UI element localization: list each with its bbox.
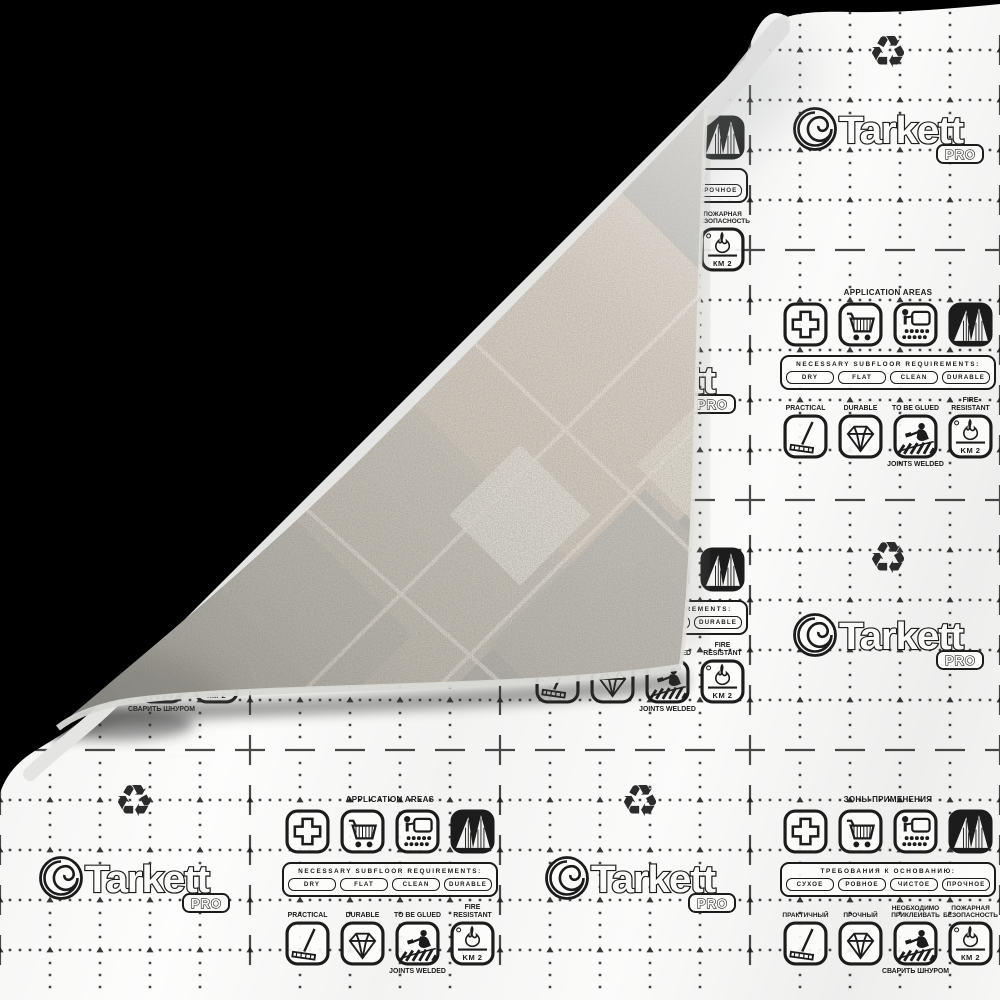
info-panel-english: APPLICATION AREAS NECESSARY SUBFLOOR REQ… bbox=[530, 534, 750, 714]
shopping-cart-icon bbox=[838, 302, 883, 347]
mop-icon bbox=[535, 227, 580, 272]
feature-label: PRACTICAL bbox=[778, 396, 834, 412]
application-area-icons bbox=[530, 115, 750, 160]
application-area-icons bbox=[778, 809, 998, 854]
feature-item: НЕОБХОДИМО ПРИКЛЕИВАТЬ СВАРИТЬ ШНУРОМ bbox=[893, 903, 938, 976]
info-panel-russian: ЗОНЫ ПРИМЕНЕНИЯ ТРЕБОВАНИЯ К ОСНОВАНИЮ:С… bbox=[778, 796, 998, 976]
subfloor-requirements-box: NECESSARY SUBFLOOR REQUIREMENTS:DRYFLATC… bbox=[282, 862, 498, 898]
feature-item: ПОЖАРНАЯ БЕЗОПАСНОСТЬ КМ 2 bbox=[948, 903, 993, 966]
fire-class-label: KM 2 bbox=[194, 259, 239, 268]
feature-label: FIRE RESISTANT bbox=[695, 641, 751, 657]
diamond-icon bbox=[84, 659, 129, 704]
application-area-icons bbox=[24, 115, 244, 160]
requirement-pill: DRY bbox=[538, 616, 586, 629]
flame-icon: КМ 2 bbox=[948, 921, 993, 966]
flame-icon: KM 2 bbox=[194, 227, 239, 272]
feature-item: НЕОБХОДИМО ПРИКЛЕИВАТЬ СВАРИТЬ ШНУРОМ bbox=[645, 209, 690, 282]
subfloor-requirements-title: NECESSARY SUBFLOOR REQUIREMENTS: bbox=[537, 607, 743, 613]
diamond-icon bbox=[84, 227, 129, 272]
diamond-icon bbox=[340, 414, 385, 459]
mop-icon bbox=[535, 659, 580, 704]
flooring-product-photo: APPLICATION AREAS NECESSARY SUBFLOOR REQ… bbox=[0, 0, 1000, 1000]
diamond-icon bbox=[590, 227, 635, 272]
info-panel-russian: ЗОНЫ ПРИМЕНЕНИЯ ТРЕБОВАНИЯ К ОСНОВАНИЮ:С… bbox=[280, 289, 500, 469]
recycling-icon: ♻ bbox=[595, 281, 685, 325]
fire-class-label: КМ 2 bbox=[194, 691, 239, 700]
presentation-board-icon bbox=[893, 302, 938, 347]
feature-item: PRACTICAL bbox=[783, 396, 828, 459]
feature-item: FIRE RESISTANT KM 2 bbox=[450, 903, 495, 966]
feature-label: НЕОБХОДИМО ПРИКЛЕИВАТЬ bbox=[390, 396, 446, 412]
requirement-pill: FLAT bbox=[84, 184, 132, 197]
requirement-pill: ЧИСТОЕ bbox=[642, 184, 690, 197]
requirement-pill: CLEAN bbox=[392, 878, 440, 891]
mop-icon bbox=[285, 921, 330, 966]
diamond-icon bbox=[340, 921, 385, 966]
requirement-pill: CLEAN bbox=[136, 184, 184, 197]
buildings-icon bbox=[194, 115, 239, 160]
subfloor-requirements-title: ТРЕБОВАНИЯ К ОСНОВАНИЮ: bbox=[537, 175, 743, 181]
glue-trowel-icon bbox=[395, 921, 440, 966]
pro-badge-label: PRO bbox=[447, 147, 477, 162]
subfloor-requirements-title: NECESSARY SUBFLOOR REQUIREMENTS: bbox=[31, 175, 237, 181]
requirement-pill: FLAT bbox=[340, 878, 388, 891]
feature-label: ПОЖАРНАЯ БЕЗОПАСНОСТЬ bbox=[943, 903, 999, 919]
requirement-pill: ЧИСТОЕ bbox=[136, 616, 184, 629]
subfloor-requirements-title: NECESSARY SUBFLOOR REQUIREMENTS: bbox=[785, 362, 991, 368]
pro-badge-label: PRO bbox=[191, 397, 221, 412]
application-area-icons bbox=[778, 302, 998, 347]
requirement-pill: DURABLE bbox=[942, 371, 990, 384]
presentation-board-icon bbox=[395, 809, 440, 854]
feature-sublabel: JOINTS WELDED bbox=[639, 707, 696, 714]
shopping-cart-icon bbox=[84, 115, 129, 160]
presentation-board-icon bbox=[893, 809, 938, 854]
requirement-pill: DRY bbox=[32, 184, 80, 197]
info-panel-russian: ЗОНЫ ПРИМЕНЕНИЯ ТРЕБОВАНИЯ К ОСНОВАНИЮ:С… bbox=[530, 102, 750, 282]
fire-class-label: KM 2 bbox=[450, 953, 495, 962]
buildings-icon bbox=[450, 809, 495, 854]
feature-item: НЕОБХОДИМО ПРИКЛЕИВАТЬ СВАРИТЬ ШНУРОМ bbox=[139, 641, 184, 714]
subfloor-requirements-title: ТРЕБОВАНИЯ К ОСНОВАНИЮ: bbox=[785, 869, 991, 875]
tarkett-swirl-icon bbox=[297, 615, 338, 656]
diamond-icon bbox=[590, 659, 635, 704]
feature-item: ПРАКТИЧНЫЙ bbox=[783, 903, 828, 966]
application-area-icons bbox=[24, 547, 244, 592]
glue-trowel-icon bbox=[893, 921, 938, 966]
shopping-cart-icon bbox=[84, 547, 129, 592]
feature-item: DURABLE bbox=[838, 396, 883, 459]
flame-icon: KM 2 bbox=[450, 921, 495, 966]
feature-item: НЕОБХОДИМО ПРИКЛЕИВАТЬ СВАРИТЬ ШНУРОМ bbox=[395, 396, 440, 469]
requirement-pill: РОВНОЕ bbox=[838, 878, 886, 891]
requirement-pill: ЧИСТОЕ bbox=[392, 371, 440, 384]
feature-label: PRACTICAL bbox=[280, 903, 336, 919]
feature-item: DURABLE bbox=[590, 641, 635, 704]
application-areas-title: ЗОНЫ ПРИМЕНЕНИЯ bbox=[24, 534, 244, 543]
flame-icon: KM 2 bbox=[700, 659, 745, 704]
feature-item: TO BE GLUED JOINTS WELDED bbox=[139, 209, 184, 282]
glue-trowel-icon bbox=[139, 659, 184, 704]
feature-item: TO BE GLUED JOINTS WELDED bbox=[893, 396, 938, 469]
recycling-icon: ♻ bbox=[595, 780, 685, 824]
feature-item: ПРАКТИЧНЫЙ bbox=[535, 209, 580, 272]
tarkett-logo: Tarkett PRO bbox=[543, 844, 743, 916]
recycling-icon: ♻ bbox=[843, 31, 933, 75]
glue-trowel-icon bbox=[139, 227, 184, 272]
recycling-icon: ♻ bbox=[345, 537, 435, 581]
diamond-icon bbox=[838, 414, 883, 459]
feature-icons-row: ПРАКТИЧНЫЙ ПРОЧНЫЙ НЕОБХОДИМО ПРИКЛЕИВАТ… bbox=[24, 641, 244, 714]
feature-label: FIRE RESISTANT bbox=[189, 209, 245, 225]
subfloor-requirements-box: NECESSARY SUBFLOOR REQUIREMENTS:DRYFLATC… bbox=[532, 600, 748, 636]
application-areas-title: APPLICATION AREAS bbox=[530, 534, 750, 543]
feature-sublabel: СВАРИТЬ ШНУРОМ bbox=[128, 707, 195, 714]
application-areas-title: APPLICATION AREAS bbox=[778, 289, 998, 298]
presentation-board-icon bbox=[645, 115, 690, 160]
feature-label: ПРОЧНЫЙ bbox=[79, 641, 135, 657]
feature-item: FIRE RESISTANT KM 2 bbox=[700, 641, 745, 704]
requirement-pill: СУХОЕ bbox=[538, 184, 586, 197]
feature-label: ПРОЧНЫЙ bbox=[585, 209, 641, 225]
application-area-icons bbox=[530, 547, 750, 592]
feature-label: TO BE GLUED bbox=[390, 903, 446, 919]
pro-badge-label: PRO bbox=[945, 653, 975, 668]
tarkett-swirl-icon bbox=[795, 615, 836, 656]
feature-item: ПРОЧНЫЙ bbox=[340, 396, 385, 459]
requirement-pill: DURABLE bbox=[444, 878, 492, 891]
presentation-board-icon bbox=[139, 115, 184, 160]
medical-cross-icon bbox=[535, 115, 580, 160]
medical-cross-icon bbox=[783, 302, 828, 347]
feature-sublabel: СВАРИТЬ ШНУРОМ bbox=[384, 462, 451, 469]
pro-badge-label: PRO bbox=[945, 147, 975, 162]
buildings-icon bbox=[948, 809, 993, 854]
requirement-pill: СУХОЕ bbox=[288, 371, 336, 384]
tarkett-logo: Tarkett PRO bbox=[293, 601, 493, 673]
pro-badge-label: PRO bbox=[697, 896, 727, 911]
feature-item: DURABLE bbox=[340, 903, 385, 966]
requirement-pill: CLEAN bbox=[890, 371, 938, 384]
application-areas-title: ЗОНЫ ПРИМЕНЕНИЯ bbox=[280, 289, 500, 298]
feature-item: ПРОЧНЫЙ bbox=[84, 641, 129, 704]
feature-sublabel: СВАРИТЬ ШНУРОМ bbox=[882, 969, 949, 976]
feature-icons-row: PRACTICAL DURABLE TO BE GLUED JOINTS WEL… bbox=[24, 209, 244, 282]
feature-icons-row: PRACTICAL DURABLE TO BE GLUED JOINTS WEL… bbox=[778, 396, 998, 469]
recycling-icon: ♻ bbox=[89, 281, 179, 325]
feature-icons-row: ПРАКТИЧНЫЙ ПРОЧНЫЙ НЕОБХОДИМО ПРИКЛЕИВАТ… bbox=[280, 396, 500, 469]
requirement-pill: ЧИСТОЕ bbox=[890, 878, 938, 891]
feature-sublabel: JOINTS WELDED bbox=[389, 969, 446, 976]
fire-class-label: КМ 2 bbox=[450, 446, 495, 455]
buildings-icon bbox=[700, 115, 745, 160]
medical-cross-icon bbox=[29, 115, 74, 160]
diamond-icon bbox=[838, 921, 883, 966]
subfloor-requirements-box: ТРЕБОВАНИЯ К ОСНОВАНИЮ:СУХОЕРОВНОЕЧИСТОЕ… bbox=[26, 600, 242, 636]
feature-item: ПОЖАРНАЯ БЕЗОПАСНОСТЬ КМ 2 bbox=[194, 641, 239, 704]
tarkett-logo: Tarkett PRO bbox=[37, 345, 237, 417]
application-area-icons bbox=[280, 809, 500, 854]
feature-sublabel: JOINTS WELDED bbox=[887, 462, 944, 469]
presentation-board-icon bbox=[645, 547, 690, 592]
application-area-icons bbox=[280, 302, 500, 347]
feature-label: ПРАКТИЧНЫЙ bbox=[530, 209, 586, 225]
feature-icons-row: PRACTICAL DURABLE TO BE GLUED JOINTS WEL… bbox=[280, 903, 500, 976]
feature-label: ПРАКТИЧНЫЙ bbox=[280, 396, 336, 412]
feature-label: ПРАКТИЧНЫЙ bbox=[778, 903, 834, 919]
feature-item: ПОЖАРНАЯ БЕЗОПАСНОСТЬ КМ 2 bbox=[450, 396, 495, 459]
feature-icons-row: ПРАКТИЧНЫЙ ПРОЧНЫЙ НЕОБХОДИМО ПРИКЛЕИВАТ… bbox=[778, 903, 998, 976]
medical-cross-icon bbox=[285, 809, 330, 854]
recycling-icon: ♻ bbox=[345, 31, 435, 75]
application-areas-title: APPLICATION AREAS bbox=[24, 102, 244, 111]
tarkett-logo: Tarkett PRO bbox=[543, 345, 743, 417]
glue-trowel-icon bbox=[645, 659, 690, 704]
medical-cross-icon bbox=[29, 547, 74, 592]
feature-label: ПРОЧНЫЙ bbox=[335, 396, 391, 412]
feature-item: TO BE GLUED JOINTS WELDED bbox=[395, 903, 440, 976]
feature-item: PRACTICAL bbox=[29, 209, 74, 272]
requirement-pill: СУХОЕ bbox=[786, 878, 834, 891]
subfloor-requirements-box: NECESSARY SUBFLOOR REQUIREMENTS:DRYFLATC… bbox=[780, 355, 996, 391]
feature-label: ПРАКТИЧНЫЙ bbox=[24, 641, 80, 657]
feature-item: PRACTICAL bbox=[285, 903, 330, 966]
glue-trowel-icon bbox=[645, 227, 690, 272]
requirement-pill: FLAT bbox=[838, 371, 886, 384]
flame-icon: КМ 2 bbox=[194, 659, 239, 704]
info-panel-russian: ЗОНЫ ПРИМЕНЕНИЯ ТРЕБОВАНИЯ К ОСНОВАНИЮ:С… bbox=[24, 534, 244, 714]
requirement-pill: ПРОЧНОЕ bbox=[444, 371, 492, 384]
feature-item: ПРОЧНЫЙ bbox=[590, 209, 635, 272]
feature-item: ПОЖАРНАЯ БЕЗОПАСНОСТЬ КМ 2 bbox=[700, 209, 745, 272]
feature-label: DURABLE bbox=[335, 903, 391, 919]
requirement-pill: DRY bbox=[288, 878, 336, 891]
feature-item: FIRE RESISTANT KM 2 bbox=[194, 209, 239, 272]
mop-icon bbox=[783, 414, 828, 459]
shopping-cart-icon bbox=[340, 809, 385, 854]
buildings-icon bbox=[700, 547, 745, 592]
feature-label: ПОЖАРНАЯ БЕЗОПАСНОСТЬ bbox=[445, 396, 501, 412]
mop-icon bbox=[29, 659, 74, 704]
subfloor-requirements-box: NECESSARY SUBFLOOR REQUIREMENTS:DRYFLATC… bbox=[26, 168, 242, 204]
feature-label: DURABLE bbox=[79, 209, 135, 225]
feature-label: ПОЖАРНАЯ БЕЗОПАСНОСТЬ bbox=[189, 641, 245, 657]
buildings-icon bbox=[194, 547, 239, 592]
application-areas-title: ЗОНЫ ПРИМЕНЕНИЯ bbox=[778, 796, 998, 805]
tarkett-logo: Tarkett PRO bbox=[791, 601, 991, 673]
pro-badge-label: PRO bbox=[447, 653, 477, 668]
fire-class-label: КМ 2 bbox=[700, 259, 745, 268]
flame-icon: KM 2 bbox=[948, 414, 993, 459]
shopping-cart-icon bbox=[838, 809, 883, 854]
buildings-icon bbox=[450, 302, 495, 347]
feature-label: DURABLE bbox=[833, 396, 889, 412]
feature-item: PRACTICAL bbox=[535, 641, 580, 704]
feature-item: DURABLE bbox=[84, 209, 129, 272]
subfloor-requirements-box: ТРЕБОВАНИЯ К ОСНОВАНИЮ:СУХОЕРОВНОЕЧИСТОЕ… bbox=[282, 355, 498, 391]
feature-label: FIRE RESISTANT bbox=[943, 396, 999, 412]
requirement-pill: DRY bbox=[786, 371, 834, 384]
feature-label: PRACTICAL bbox=[530, 641, 586, 657]
application-areas-title: APPLICATION AREAS bbox=[280, 796, 500, 805]
flame-icon: КМ 2 bbox=[450, 414, 495, 459]
mop-icon bbox=[783, 921, 828, 966]
subfloor-requirements-title: ТРЕБОВАНИЯ К ОСНОВАНИЮ: bbox=[31, 607, 237, 613]
mop-icon bbox=[29, 227, 74, 272]
requirement-pill: DURABLE bbox=[694, 616, 742, 629]
feature-label: DURABLE bbox=[585, 641, 641, 657]
tarkett-swirl-icon bbox=[41, 858, 82, 899]
feature-label: НЕОБХОДИМО ПРИКЛЕИВАТЬ bbox=[888, 903, 944, 919]
pro-badge-label: PRO bbox=[697, 397, 727, 412]
tarkett-logo: Tarkett PRO bbox=[37, 844, 237, 916]
feature-icons-row: ПРАКТИЧНЫЙ ПРОЧНЫЙ НЕОБХОДИМО ПРИКЛЕИВАТ… bbox=[530, 209, 750, 282]
shopping-cart-icon bbox=[340, 302, 385, 347]
presentation-board-icon bbox=[395, 302, 440, 347]
feature-label: ПОЖАРНАЯ БЕЗОПАСНОСТЬ bbox=[695, 209, 751, 225]
feature-label: НЕОБХОДИМО ПРИКЛЕИВАТЬ bbox=[640, 209, 696, 225]
subfloor-requirements-box: ТРЕБОВАНИЯ К ОСНОВАНИЮ:СУХОЕРОВНОЕЧИСТОЕ… bbox=[532, 168, 748, 204]
requirement-pill: FLAT bbox=[590, 616, 638, 629]
medical-cross-icon bbox=[285, 302, 330, 347]
pro-badge-label: PRO bbox=[191, 896, 221, 911]
fire-class-label: KM 2 bbox=[700, 691, 745, 700]
recycling-icon: ♻ bbox=[843, 537, 933, 581]
feature-item: ПРАКТИЧНЫЙ bbox=[29, 641, 74, 704]
info-panel-english: APPLICATION AREAS NECESSARY SUBFLOOR REQ… bbox=[280, 796, 500, 976]
application-areas-title: ЗОНЫ ПРИМЕНЕНИЯ bbox=[530, 102, 750, 111]
requirement-pill: РОВНОЕ bbox=[590, 184, 638, 197]
tarkett-swirl-icon bbox=[547, 858, 588, 899]
feature-item: FIRE RESISTANT KM 2 bbox=[948, 396, 993, 459]
requirement-pill: РОВНОЕ bbox=[84, 616, 132, 629]
subfloor-requirements-box: ТРЕБОВАНИЯ К ОСНОВАНИЮ:СУХОЕРОВНОЕЧИСТОЕ… bbox=[780, 862, 996, 898]
fire-class-label: КМ 2 bbox=[948, 953, 993, 962]
feature-item: ПРАКТИЧНЫЙ bbox=[285, 396, 330, 459]
recycling-icon: ♻ bbox=[89, 780, 179, 824]
requirement-pill: ПРОЧНОЕ bbox=[694, 184, 742, 197]
feature-label: FIRE RESISTANT bbox=[445, 903, 501, 919]
fire-class-label: KM 2 bbox=[948, 446, 993, 455]
flame-icon: КМ 2 bbox=[700, 227, 745, 272]
requirement-pill: ПРОЧНОЕ bbox=[942, 878, 990, 891]
tarkett-swirl-icon bbox=[547, 359, 588, 400]
medical-cross-icon bbox=[783, 809, 828, 854]
printed-back-pattern: APPLICATION AREAS NECESSARY SUBFLOOR REQ… bbox=[0, 0, 1000, 1000]
info-panel-english: APPLICATION AREAS NECESSARY SUBFLOOR REQ… bbox=[24, 102, 244, 282]
requirement-pill: РОВНОЕ bbox=[340, 371, 388, 384]
tarkett-swirl-icon bbox=[297, 109, 338, 150]
feature-icons-row: PRACTICAL DURABLE TO BE GLUED JOINTS WEL… bbox=[530, 641, 750, 714]
feature-item: TO BE GLUED JOINTS WELDED bbox=[645, 641, 690, 714]
feature-label: ПРОЧНЫЙ bbox=[833, 903, 889, 919]
requirement-pill: CLEAN bbox=[642, 616, 690, 629]
buildings-icon bbox=[948, 302, 993, 347]
tarkett-swirl-icon bbox=[795, 109, 836, 150]
glue-trowel-icon bbox=[893, 414, 938, 459]
glue-trowel-icon bbox=[395, 414, 440, 459]
feature-label: НЕОБХОДИМО ПРИКЛЕИВАТЬ bbox=[134, 641, 190, 657]
shopping-cart-icon bbox=[590, 547, 635, 592]
feature-label: TO BE GLUED bbox=[134, 209, 190, 225]
shopping-cart-icon bbox=[590, 115, 635, 160]
feature-label: PRACTICAL bbox=[24, 209, 80, 225]
tarkett-swirl-icon bbox=[41, 359, 82, 400]
requirement-pill: СУХОЕ bbox=[32, 616, 80, 629]
tarkett-logo: Tarkett PRO bbox=[293, 95, 493, 167]
tarkett-logo: Tarkett PRO bbox=[791, 95, 991, 167]
requirement-pill: DURABLE bbox=[188, 184, 236, 197]
medical-cross-icon bbox=[535, 547, 580, 592]
info-panel-english: APPLICATION AREAS NECESSARY SUBFLOOR REQ… bbox=[778, 289, 998, 469]
feature-label: TO BE GLUED bbox=[640, 641, 696, 657]
subfloor-requirements-title: ТРЕБОВАНИЯ К ОСНОВАНИЮ: bbox=[287, 362, 493, 368]
feature-item: ПРОЧНЫЙ bbox=[838, 903, 883, 966]
subfloor-requirements-title: NECESSARY SUBFLOOR REQUIREMENTS: bbox=[287, 869, 493, 875]
mop-icon bbox=[285, 414, 330, 459]
feature-label: TO BE GLUED bbox=[888, 396, 944, 412]
presentation-board-icon bbox=[139, 547, 184, 592]
requirement-pill: ПРОЧНОЕ bbox=[188, 616, 236, 629]
